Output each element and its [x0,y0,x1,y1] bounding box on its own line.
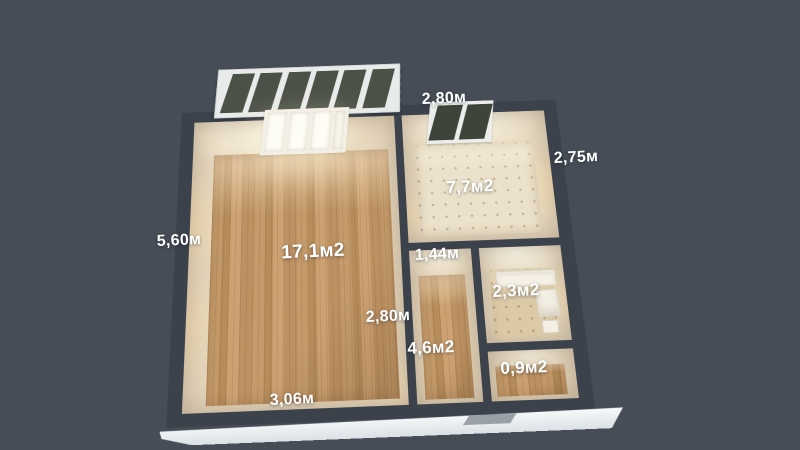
entry-doorway [463,413,517,425]
dimension-label-left-depth: 5,60м [156,231,201,251]
area-label-living-room: 17,1м2 [281,240,345,265]
kitchen-window-pane [428,105,462,141]
living-window-pane [264,113,288,152]
living-room-window [259,107,349,156]
dimension-label-hallway-width: 1,44м [414,245,459,265]
living-room-floor [206,149,400,406]
area-label-hallway: 4,6м2 [407,337,455,359]
kitchen-window-pane [458,104,492,140]
hallway [409,248,483,404]
dimension-label-kitchen-depth: 2,75м [553,148,598,168]
apartment-outer-walls [166,100,595,428]
dimension-label-bottom-width: 3,06м [269,390,314,410]
living-window-pane [310,111,333,150]
balcony-door [332,111,345,150]
foundation-slab [159,407,626,446]
balcony-window-pane [334,69,367,109]
area-label-kitchen: 7,7м2 [446,176,494,198]
balcony-window-pane [362,69,395,109]
dimension-label-kitchen-width: 2,80м [421,89,466,109]
living-window-pane [287,112,310,151]
floor-plan-render: 2,80м 2,75м 5,60м 3,06м 2,80м 1,44м 17,1… [0,0,800,450]
living-room [182,116,409,414]
sink [542,319,560,333]
area-label-bathroom: 2,3м2 [492,280,540,302]
area-label-wc: 0,9м2 [500,357,548,379]
dimension-label-living-inner-width: 2,80м [365,307,410,327]
